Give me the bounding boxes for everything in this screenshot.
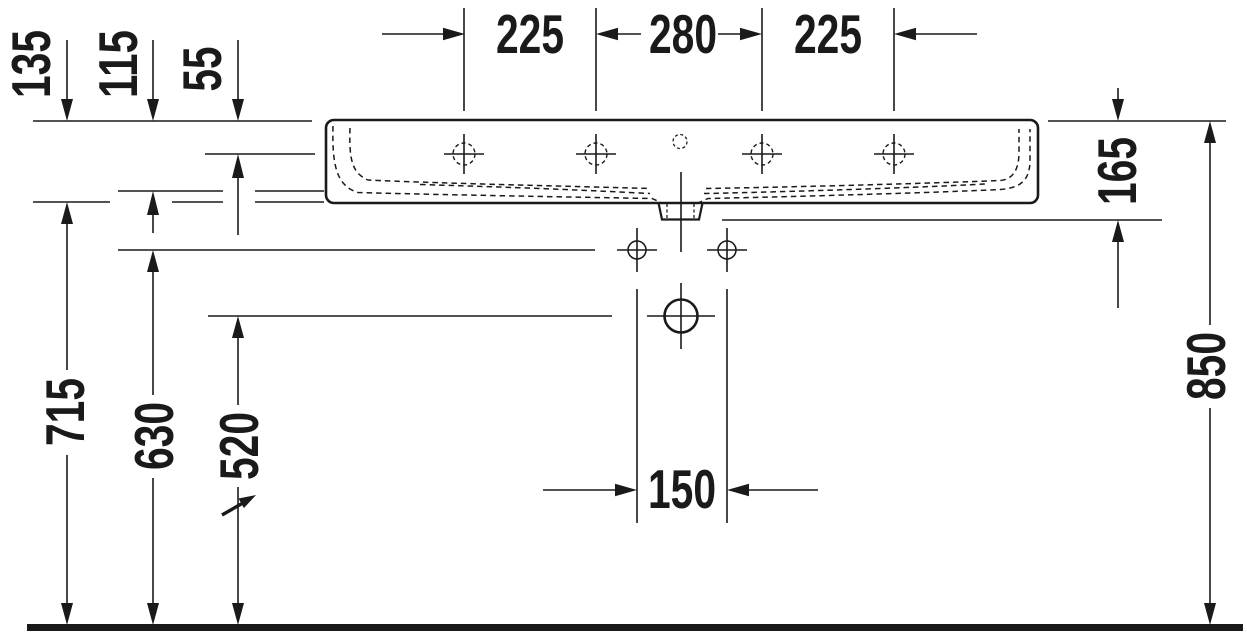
tap-hole-markers xyxy=(444,134,914,174)
dim-label-body-outlet-height: 165 xyxy=(1086,137,1148,205)
dim-850: 850 xyxy=(1175,121,1237,625)
dim-135: 135 xyxy=(0,30,73,121)
tap-hole-marker xyxy=(444,134,484,174)
dim-label-floor-to-drain: 520 xyxy=(208,412,270,480)
floor-line xyxy=(27,624,1243,631)
dim-label-top-right: 225 xyxy=(794,3,862,65)
drain-pointer-arrow xyxy=(222,495,256,515)
dim-label-floor-to-body: 715 xyxy=(34,378,96,446)
dim-630: 630 xyxy=(123,250,185,625)
tap-hole-marker xyxy=(874,134,914,174)
fixing-holes xyxy=(617,228,747,272)
dim-label-floor-to-rim: 850 xyxy=(1175,332,1237,400)
dim-label-floor-to-fixings: 630 xyxy=(123,402,185,470)
dim-520: 520 xyxy=(208,316,270,625)
washbasin-dimension-drawing: 225 280 225 135 115 55 715 630 xyxy=(0,0,1247,634)
tap-hole-marker xyxy=(742,134,782,174)
dim-715: 715 xyxy=(34,202,96,625)
dim-top-hole-spacing: 225 280 225 xyxy=(382,3,977,111)
technical-drawing-canvas: 225 280 225 135 115 55 715 630 xyxy=(0,0,1247,634)
basin-inner-contour-mid xyxy=(420,184,985,194)
dim-label-rim-to-holes: 55 xyxy=(171,47,233,92)
dim-label-fixing-spacing: 150 xyxy=(648,458,716,520)
tap-hole-marker xyxy=(576,134,616,174)
reference-lines-left xyxy=(33,121,612,316)
dim-label-top-center: 280 xyxy=(649,3,717,65)
drain-connection xyxy=(647,172,715,349)
dim-label-rim-height: 135 xyxy=(0,30,62,98)
dim-label-basin-depth: 115 xyxy=(87,30,149,98)
dim-55: 55 xyxy=(171,40,244,235)
basin-inner-contour-top xyxy=(350,128,1019,189)
overflow-hole-dashed xyxy=(673,135,687,149)
dim-label-top-left: 225 xyxy=(496,3,564,65)
washbasin-outline xyxy=(326,120,1038,203)
